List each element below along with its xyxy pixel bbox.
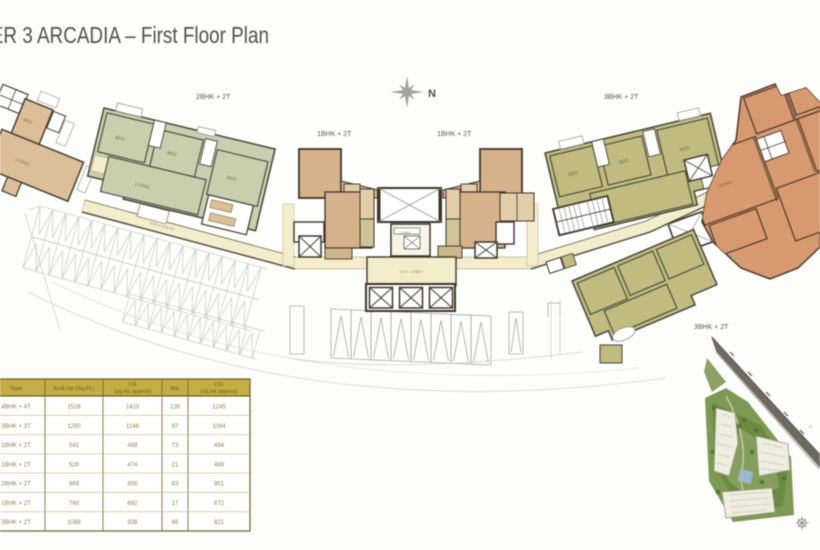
svg-text:Bal: Bal	[171, 386, 179, 392]
svg-text:969: 969	[69, 482, 80, 488]
svg-text:N: N	[428, 88, 436, 100]
svg-text:Built Up (Sq.Ft.): Built Up (Sq.Ft.)	[53, 386, 94, 392]
svg-text:468: 468	[127, 443, 138, 449]
svg-text:1084: 1084	[212, 424, 226, 430]
svg-text:TOWER 3 ARCADIA – First Floor: TOWER 3 ARCADIA – First Floor Plan	[0, 22, 269, 48]
svg-text:S: S	[809, 424, 812, 429]
svg-text:21: 21	[172, 462, 179, 468]
svg-text:ENT. LOBBY: ENT. LOBBY	[400, 269, 423, 274]
svg-text:126: 126	[170, 405, 181, 411]
svg-text:474: 474	[127, 462, 138, 468]
svg-text:901: 901	[214, 482, 225, 488]
svg-text:1410: 1410	[126, 405, 140, 411]
svg-text:494: 494	[214, 443, 225, 449]
svg-text:526: 526	[69, 462, 80, 468]
svg-text:938: 938	[127, 520, 138, 526]
svg-text:Type: Type	[10, 386, 23, 392]
svg-text:2BHK + 2T: 2BHK + 2T	[1, 482, 31, 488]
svg-text:83: 83	[172, 482, 179, 488]
svg-text:LOBBY: LOBBY	[400, 231, 412, 235]
svg-text:1BHK + 2T: 1BHK + 2T	[1, 462, 31, 468]
svg-text:CG: CG	[215, 382, 224, 388]
svg-text:821: 821	[214, 520, 225, 526]
svg-text:2BHK + 2T: 2BHK + 2T	[196, 94, 231, 101]
svg-text:1290: 1290	[67, 424, 81, 430]
svg-text:73: 73	[172, 443, 179, 449]
svg-text:4BHK + 4T: 4BHK + 4T	[1, 405, 31, 411]
svg-text:1146: 1146	[126, 424, 140, 430]
svg-text:3BHK + 2T: 3BHK + 2T	[1, 520, 31, 526]
svg-text:3BHK + 2T: 3BHK + 2T	[694, 324, 729, 331]
svg-text:672: 672	[214, 501, 225, 507]
svg-text:(sq.mt.approx): (sq.mt.approx)	[200, 389, 237, 395]
svg-text:1526: 1526	[67, 405, 81, 411]
svg-text:17: 17	[172, 501, 179, 507]
svg-text:97: 97	[172, 424, 179, 430]
svg-text:(sq.mt.approx): (sq.mt.approx)	[114, 389, 151, 395]
svg-text:1BHK + 2T: 1BHK + 2T	[437, 131, 472, 138]
svg-text:3BHK + 3T: 3BHK + 3T	[1, 424, 31, 430]
svg-text:856: 856	[127, 482, 138, 488]
svg-text:3BHK + 2T: 3BHK + 2T	[604, 94, 639, 101]
svg-text:1BHK + 2T: 1BHK + 2T	[317, 131, 352, 138]
svg-text:86: 86	[172, 520, 179, 526]
svg-text:692: 692	[127, 501, 138, 507]
svg-text:CA: CA	[128, 382, 136, 388]
svg-text:1BHK + 2T: 1BHK + 2T	[1, 443, 31, 449]
svg-text:1088: 1088	[67, 520, 81, 526]
svg-text:760: 760	[69, 501, 80, 507]
svg-text:1BHK + 2T: 1BHK + 2T	[1, 501, 31, 507]
svg-text:489: 489	[214, 462, 225, 468]
svg-text:1245: 1245	[212, 405, 226, 411]
svg-text:541: 541	[69, 443, 80, 449]
